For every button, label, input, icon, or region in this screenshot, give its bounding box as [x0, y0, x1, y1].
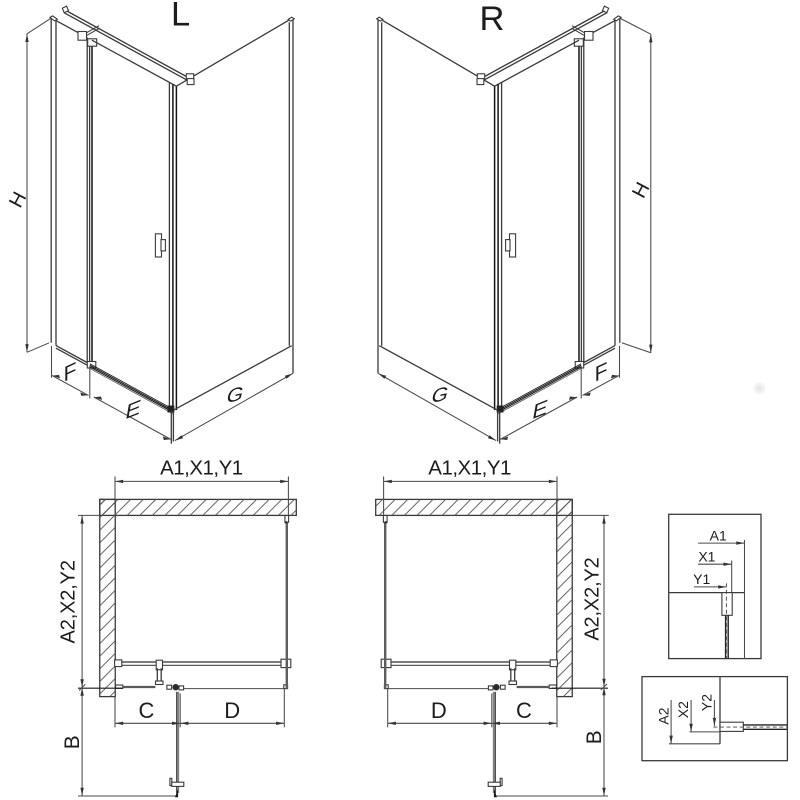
svg-text:A1,X1,Y1: A1,X1,Y1	[428, 456, 511, 479]
svg-text:D: D	[224, 698, 240, 723]
svg-text:D: D	[431, 698, 447, 723]
svg-text:A2: A2	[656, 707, 672, 724]
svg-text:A2,X2,Y2: A2,X2,Y2	[582, 557, 604, 640]
svg-text:B: B	[583, 730, 606, 744]
svg-text:A1: A1	[710, 528, 727, 544]
svg-text:A2,X2,Y2: A2,X2,Y2	[58, 560, 80, 643]
svg-text:R: R	[480, 0, 505, 38]
svg-text:L: L	[171, 0, 190, 34]
svg-text:X1: X1	[698, 549, 715, 565]
svg-text:C: C	[516, 698, 532, 723]
svg-text:B: B	[61, 735, 84, 749]
svg-text:Y1: Y1	[693, 571, 710, 587]
svg-text:C: C	[138, 698, 154, 723]
svg-text:X2: X2	[675, 701, 691, 718]
svg-text:A1,X1,Y1: A1,X1,Y1	[160, 456, 243, 479]
svg-text:Y2: Y2	[698, 694, 714, 711]
